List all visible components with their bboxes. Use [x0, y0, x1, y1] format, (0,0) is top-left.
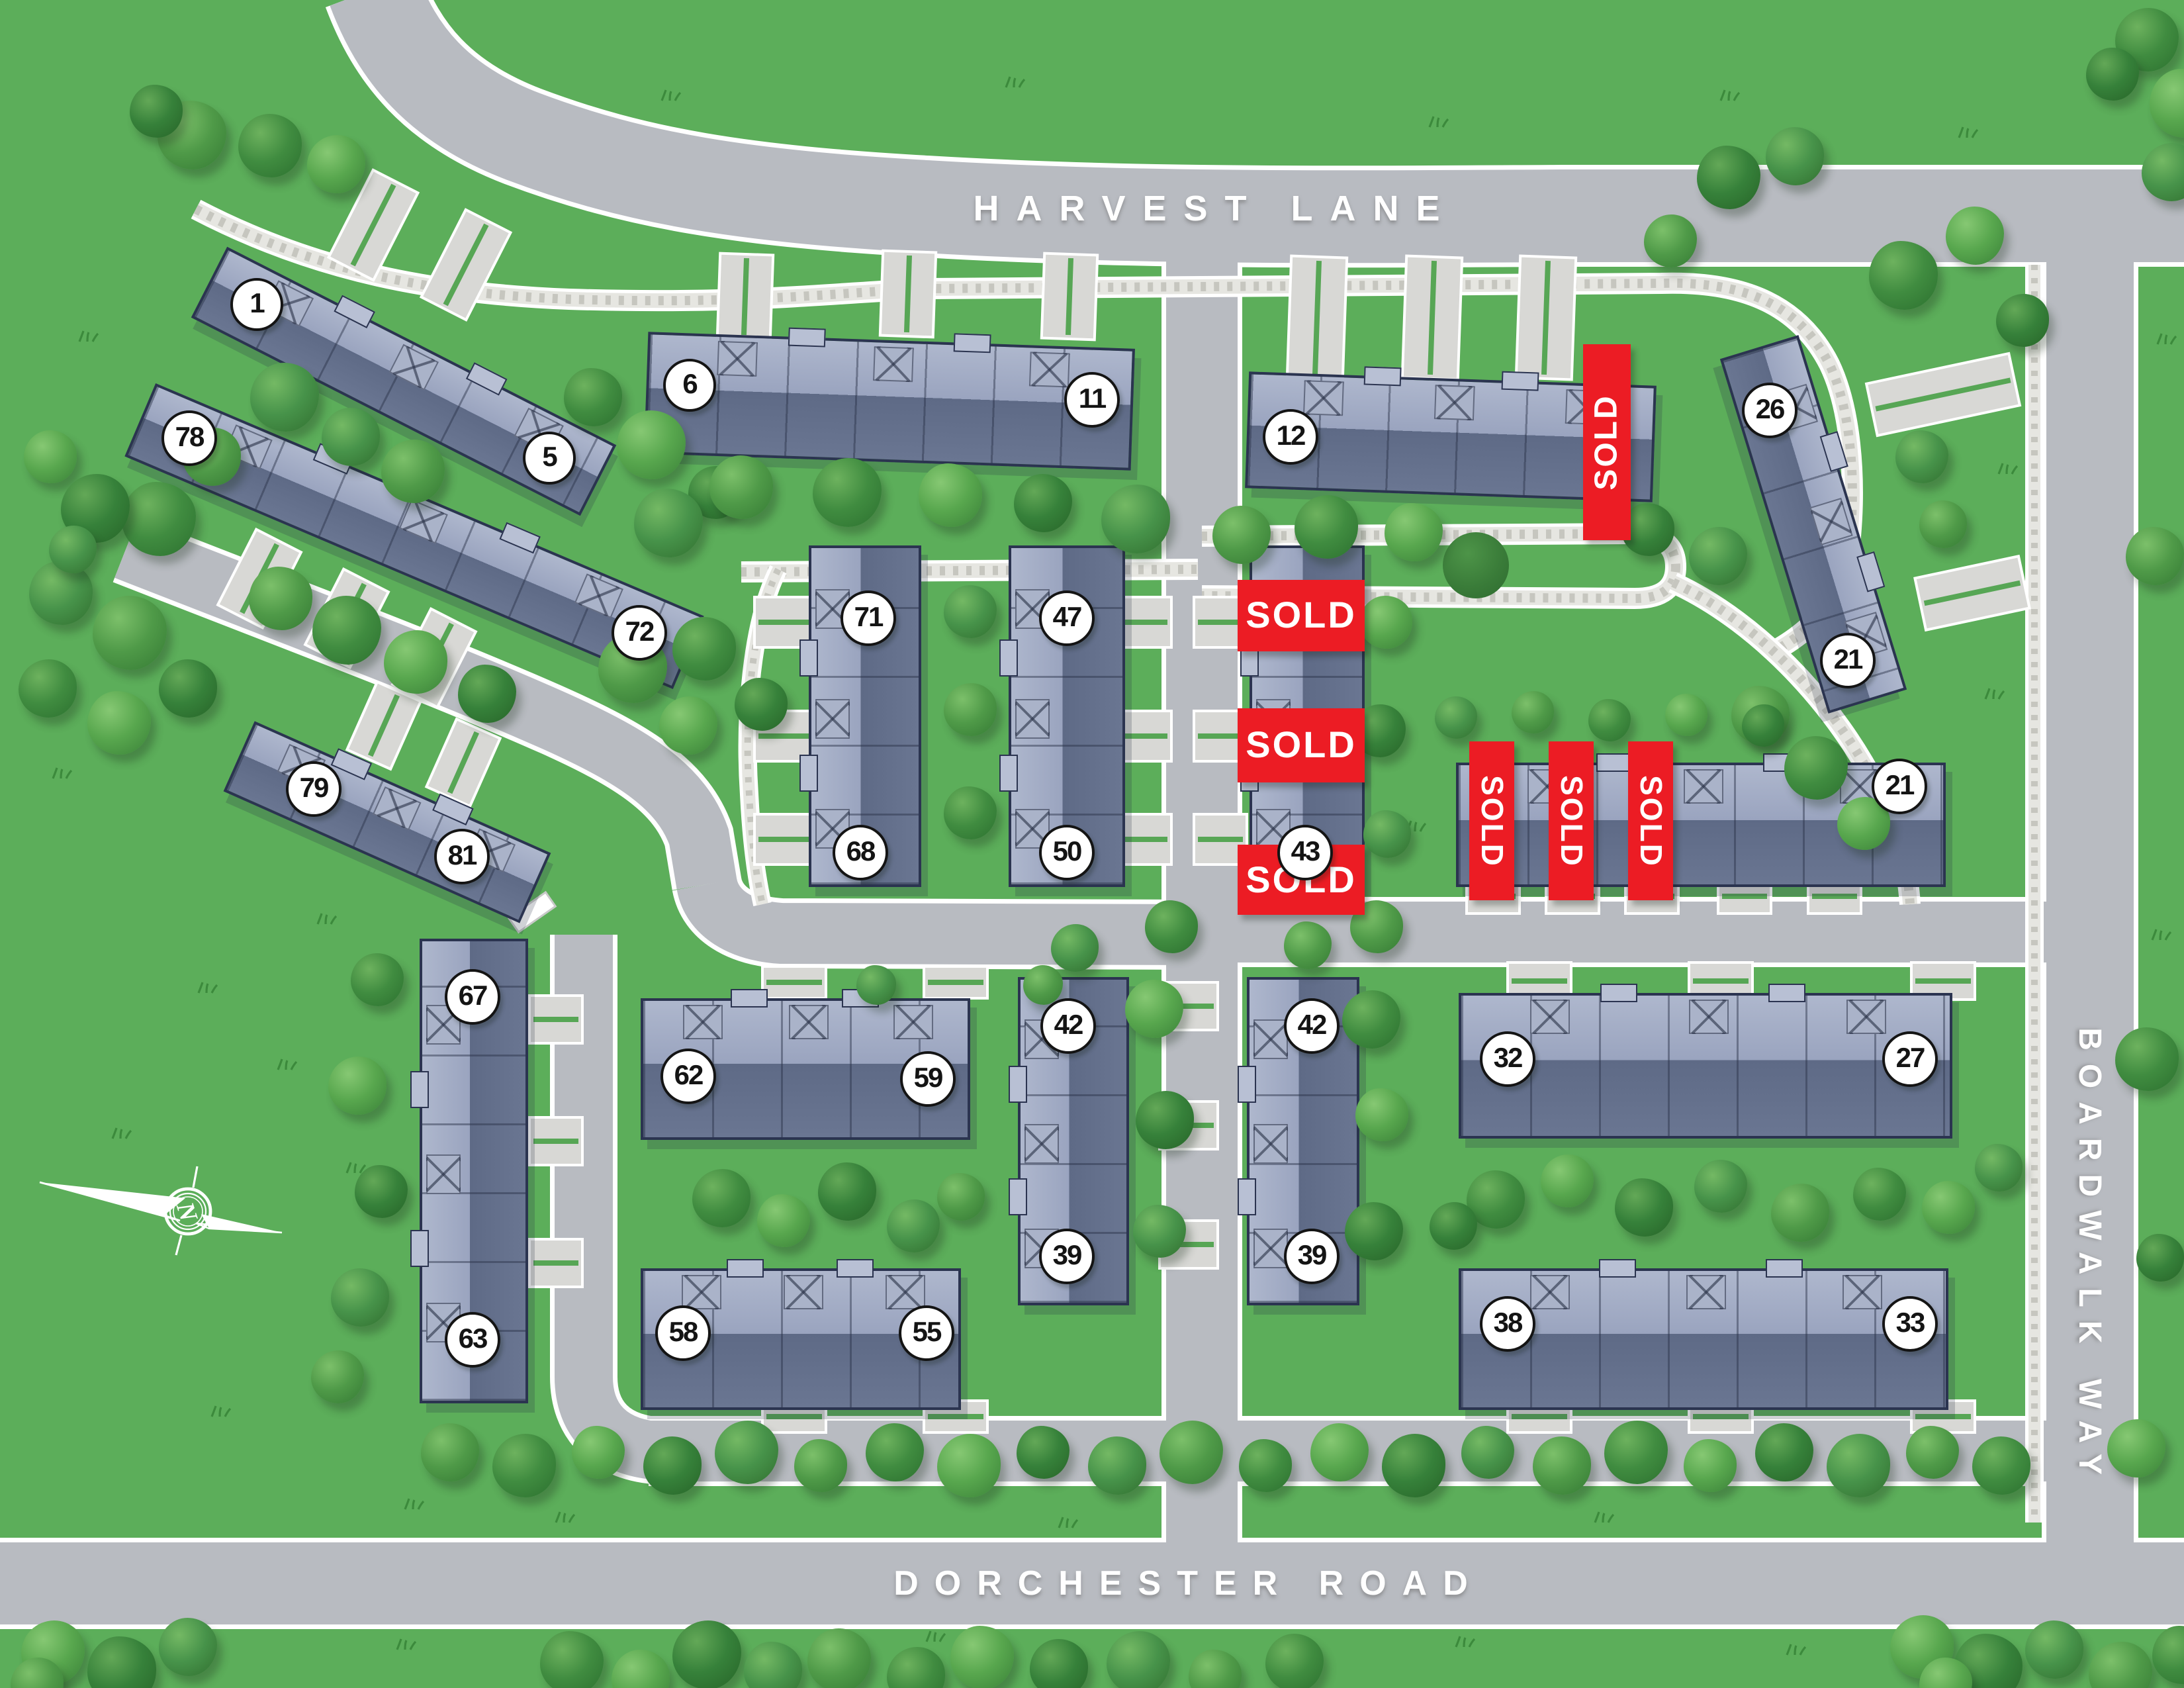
porch-bump: [1766, 1259, 1803, 1278]
site-plan-map: N HARVEST LANEDORCHESTER ROADBOARDWALK W…: [0, 0, 2184, 1688]
lot-badge-43[interactable]: 43: [1277, 825, 1333, 880]
tree-icon: [672, 1620, 741, 1688]
roof-trellis-panel: [1024, 1124, 1059, 1164]
lot-badge-21-upper[interactable]: 21: [1820, 633, 1876, 688]
tree-icon: [384, 630, 447, 694]
tree-icon: [944, 786, 997, 839]
grass-tuft-icon: [405, 1499, 424, 1509]
porch-bump: [1502, 371, 1539, 391]
tree-icon: [1665, 694, 1707, 736]
roof-trellis-panel: [1015, 699, 1050, 739]
tree-icon: [1755, 1423, 1813, 1481]
grass-tuft-icon: [662, 90, 680, 101]
tree-icon: [1136, 1091, 1194, 1149]
roof-trellis-panel: [1846, 1000, 1886, 1034]
tree-icon: [1014, 474, 1072, 532]
tree-icon: [312, 596, 381, 665]
tree-icon: [709, 455, 773, 519]
tree-icon: [1742, 704, 1784, 747]
tree-icon: [1604, 1421, 1668, 1484]
tree-icon: [2025, 1620, 2083, 1679]
porch-bump: [1768, 984, 1805, 1002]
tree-icon: [2136, 1234, 2184, 1282]
tree-icon: [1697, 146, 1760, 209]
roof-trellis-panel: [873, 346, 914, 382]
tree-icon: [807, 1628, 871, 1688]
sold-building-21-a[interactable]: SOLD: [1469, 741, 1514, 900]
lot-badge-6[interactable]: 6: [663, 359, 716, 412]
tree-icon: [1107, 1631, 1170, 1688]
tree-icon: [887, 1199, 940, 1252]
porch-bump: [999, 755, 1018, 792]
roof-trellis-panel: [1530, 1000, 1570, 1034]
lot-badge-62[interactable]: 62: [660, 1049, 716, 1104]
tree-icon: [322, 408, 380, 466]
roof-trellis-panel: [1684, 769, 1723, 804]
tree-icon: [458, 665, 516, 723]
building-38-33[interactable]: [1459, 1268, 1948, 1410]
tree-icon: [2126, 527, 2184, 585]
tree-icon: [328, 1056, 387, 1115]
tree-icon: [1869, 241, 1938, 310]
tree-icon: [944, 585, 997, 638]
tree-icon: [1771, 1184, 1829, 1242]
tree-icon: [1996, 294, 2049, 347]
porch-bump: [799, 639, 818, 676]
tree-icon: [311, 1350, 364, 1403]
tree-icon: [2107, 1419, 2165, 1477]
tree-icon: [1133, 1205, 1186, 1258]
grass-tuft-icon: [79, 331, 98, 342]
tree-icon: [937, 1434, 1001, 1497]
lot-badge-71[interactable]: 71: [841, 590, 896, 646]
tree-icon: [1975, 1144, 2023, 1192]
parking-pad: [1042, 254, 1097, 340]
tree-icon: [1922, 1181, 1975, 1234]
tree-icon: [1512, 691, 1554, 733]
tree-icon: [1342, 990, 1400, 1049]
tree-icon: [1541, 1154, 1594, 1207]
tree-icon: [856, 965, 896, 1005]
tree-icon: [1382, 1434, 1445, 1497]
harvest-lane-road: [373, 0, 2184, 216]
tree-icon: [421, 1423, 479, 1481]
roof-trellis-panel: [1304, 380, 1345, 416]
tree-icon: [2115, 1027, 2179, 1091]
grass-tuft-icon: [1059, 1517, 1077, 1528]
tree-icon: [919, 463, 982, 527]
tree-icon: [1461, 1426, 1514, 1479]
tree-icon: [735, 678, 788, 731]
tree-icon: [238, 114, 302, 177]
lot-badge-78[interactable]: 78: [161, 410, 217, 466]
parking-pad: [426, 719, 500, 806]
tree-icon: [1355, 1088, 1408, 1141]
porch-bump: [1600, 1259, 1637, 1278]
sold-label: SOLD: [1588, 394, 1625, 490]
parking-pad: [1402, 256, 1462, 380]
tree-icon: [1295, 495, 1358, 559]
lot-badge-79[interactable]: 79: [286, 761, 341, 817]
tree-icon: [1430, 1202, 1477, 1250]
lot-badge-68[interactable]: 68: [833, 825, 888, 880]
grass-tuft-icon: [1430, 117, 1448, 127]
sold-building-21-b[interactable]: SOLD: [1549, 741, 1594, 900]
tree-icon: [1363, 810, 1411, 858]
lot-badge-67[interactable]: 67: [445, 969, 500, 1025]
lot-badge-27[interactable]: 27: [1882, 1031, 1938, 1087]
tree-icon: [1088, 1436, 1146, 1495]
tree-icon: [1101, 485, 1170, 553]
grass-tuft-icon: [1999, 463, 2017, 474]
parking-pad: [529, 1239, 582, 1287]
tree-icon: [757, 1194, 810, 1247]
sold-label: SOLD: [1553, 774, 1589, 867]
street-label-harvest-lane: HARVEST LANE: [973, 189, 1457, 230]
lot-badge-59[interactable]: 59: [900, 1051, 956, 1107]
tree-icon: [1827, 1434, 1890, 1497]
porch-bump: [1601, 984, 1638, 1002]
tree-icon: [1784, 736, 1848, 800]
grass-tuft-icon: [318, 914, 336, 924]
lot-badge-21-lower[interactable]: 21: [1872, 759, 1927, 814]
parking-pad: [1915, 556, 2029, 630]
tree-icon: [634, 489, 703, 557]
tree-icon: [1345, 1202, 1403, 1260]
tree-icon: [1946, 207, 2004, 265]
tree-icon: [1919, 500, 1967, 548]
lot-badge-42-west[interactable]: 42: [1040, 998, 1096, 1054]
tree-icon: [331, 1268, 389, 1327]
porch-bump: [1009, 1178, 1027, 1215]
tree-icon: [1385, 503, 1443, 561]
street-label-dorchester-road: DORCHESTER ROAD: [893, 1563, 1484, 1604]
tree-icon: [1853, 1168, 1906, 1221]
grass-tuft-icon: [1959, 127, 1978, 138]
tree-icon: [950, 1626, 1014, 1688]
tree-icon: [564, 368, 622, 426]
tree-icon: [93, 596, 167, 670]
sold-label: SOLD: [1474, 774, 1510, 867]
grass-tuft-icon: [1456, 1636, 1475, 1647]
grass-tuft-icon: [212, 1406, 230, 1417]
tree-icon: [1284, 921, 1332, 969]
tree-icon: [813, 458, 882, 527]
tree-icon: [1766, 127, 1824, 185]
tree-icon: [540, 1631, 604, 1688]
parking-pad: [924, 966, 987, 998]
tree-icon: [307, 135, 365, 193]
lot-badge-50[interactable]: 50: [1039, 825, 1095, 880]
roof-trellis-panel: [784, 1275, 823, 1309]
roof-trellis-panel: [1688, 1000, 1728, 1034]
tree-icon: [643, 1436, 702, 1495]
porch-bump: [953, 333, 991, 353]
grass-tuft-icon: [556, 1512, 574, 1523]
roof-trellis-panel: [683, 1005, 723, 1039]
parking-pad: [880, 251, 936, 338]
roof-trellis-panel: [788, 1005, 828, 1039]
porch-bump: [727, 1259, 764, 1278]
porch-bump: [730, 989, 767, 1008]
lot-badge-5[interactable]: 5: [523, 432, 576, 485]
tree-icon: [617, 410, 686, 479]
grass-tuft-icon: [397, 1639, 416, 1650]
tree-icon: [355, 1165, 408, 1218]
porch-bump: [410, 1072, 429, 1109]
lot-badge-58[interactable]: 58: [655, 1305, 711, 1361]
sold-building-43-a[interactable]: SOLD: [1238, 580, 1365, 651]
tree-icon: [1588, 699, 1631, 741]
tree-icon: [1972, 1436, 2030, 1495]
parking-pad: [529, 996, 582, 1043]
tree-icon: [492, 1434, 556, 1497]
tree-icon: [937, 1173, 985, 1221]
tree-icon: [1239, 1439, 1292, 1492]
lot-badge-39-west[interactable]: 39: [1039, 1229, 1095, 1284]
roof-trellis-panel: [1843, 1275, 1883, 1309]
sold-label: SOLD: [1633, 774, 1668, 867]
tree-icon: [1145, 900, 1198, 953]
compass-icon: N: [40, 1166, 282, 1255]
roof-trellis-panel: [886, 1275, 926, 1309]
lot-badge-63[interactable]: 63: [445, 1312, 500, 1368]
lot-badge-39-east[interactable]: 39: [1284, 1229, 1340, 1284]
parking-pad: [1866, 353, 2020, 436]
roof-trellis-panel: [1253, 1019, 1288, 1058]
porch-bump: [799, 755, 818, 792]
porch-bump: [1238, 1066, 1256, 1103]
sold-label: SOLD: [1246, 594, 1357, 637]
tree-icon: [692, 1169, 751, 1227]
roof-trellis-panel: [717, 341, 758, 377]
porch-bump: [999, 639, 1018, 676]
porch-bump: [1238, 1178, 1256, 1215]
porch-bump: [836, 1259, 873, 1278]
porch-bump: [1363, 366, 1401, 386]
lot-badge-11[interactable]: 11: [1064, 372, 1120, 428]
tree-icon: [572, 1426, 625, 1479]
street-label-boardwalk-way: BOARDWALK WAY: [2070, 1027, 2107, 1488]
parking-pad: [717, 254, 773, 340]
tree-icon: [866, 1423, 924, 1481]
roof-trellis-panel: [815, 699, 850, 739]
lot-badge-26[interactable]: 26: [1742, 383, 1797, 438]
tree-icon: [1684, 1439, 1737, 1492]
tree-icon: [1615, 1178, 1673, 1237]
lot-badge-1[interactable]: 1: [230, 278, 283, 331]
tree-icon: [1125, 980, 1183, 1038]
porch-bump: [788, 328, 825, 348]
tree-icon: [1212, 506, 1271, 564]
lot-badge-38[interactable]: 38: [1480, 1296, 1535, 1352]
grass-tuft-icon: [199, 982, 217, 993]
grass-tuft-icon: [1985, 688, 2004, 699]
tree-icon: [1895, 430, 1948, 483]
grass-tuft-icon: [1721, 90, 1739, 101]
tree-icon: [1160, 1421, 1223, 1484]
tree-icon: [818, 1162, 876, 1221]
grass-tuft-icon: [1006, 77, 1024, 87]
tree-icon: [159, 1618, 217, 1676]
tree-icon: [381, 440, 445, 503]
tree-icon: [715, 1421, 778, 1484]
tree-icon: [1533, 1436, 1591, 1495]
sold-label: SOLD: [1246, 724, 1357, 767]
lot-badge-47[interactable]: 47: [1039, 590, 1095, 646]
parking-pad: [1516, 256, 1576, 380]
parking-pad: [529, 1117, 582, 1165]
sold-building-43-b[interactable]: SOLD: [1238, 708, 1365, 782]
tree-icon: [250, 363, 319, 432]
tree-icon: [159, 659, 217, 718]
tree-icon: [1644, 214, 1697, 267]
tree-icon: [49, 526, 97, 573]
tree-icon: [944, 683, 997, 736]
roof-trellis-panel: [893, 1005, 933, 1039]
tree-icon: [1017, 1426, 1069, 1479]
tree-icon: [659, 696, 717, 755]
inner-road-west: [707, 884, 1202, 935]
tree-icon: [19, 659, 77, 718]
sold-building-12[interactable]: SOLD: [1583, 344, 1631, 540]
tree-icon: [1359, 596, 1412, 649]
tree-icon: [130, 85, 183, 138]
tree-icon: [672, 617, 736, 680]
lot-badge-72[interactable]: 72: [612, 605, 667, 661]
lot-badge-55[interactable]: 55: [899, 1305, 954, 1361]
grass-tuft-icon: [2152, 929, 2171, 940]
lot-badge-81[interactable]: 81: [434, 829, 490, 884]
tree-icon: [24, 430, 77, 483]
grass-tuft-icon: [1787, 1644, 1805, 1655]
grass-tuft-icon: [53, 768, 71, 778]
tree-icon: [1265, 1634, 1324, 1688]
tree-icon: [794, 1439, 847, 1492]
tree-icon: [1023, 965, 1063, 1005]
park-pond: [1443, 532, 1509, 598]
tree-icon: [2086, 48, 2139, 101]
lot-badge-33[interactable]: 33: [1882, 1296, 1938, 1352]
grass-tuft-icon: [927, 1631, 945, 1642]
porch-bump: [1009, 1066, 1027, 1103]
lot-badge-32[interactable]: 32: [1480, 1031, 1535, 1087]
tree-icon: [1051, 924, 1099, 972]
roof-trellis-panel: [1529, 1275, 1569, 1309]
lot-badge-12[interactable]: 12: [1263, 409, 1318, 465]
tree-icon: [249, 567, 312, 630]
roof-trellis-panel: [1028, 352, 1069, 387]
parking-pad: [762, 966, 826, 998]
tree-icon: [1694, 1160, 1747, 1213]
grass-tuft-icon: [113, 1128, 131, 1139]
roof-trellis-panel: [1253, 1124, 1288, 1164]
tree-icon: [1435, 696, 1477, 739]
roof-trellis-panel: [426, 1154, 461, 1194]
tree-icon: [1310, 1423, 1369, 1481]
tree-icon: [87, 691, 151, 755]
parking-pad: [1287, 256, 1347, 380]
sold-building-21-c[interactable]: SOLD: [1628, 741, 1673, 900]
roof-trellis-panel: [1434, 385, 1475, 420]
building-6-11[interactable]: [644, 332, 1135, 471]
parking-pad: [754, 814, 813, 865]
tree-icon: [351, 953, 404, 1006]
roof-trellis-panel: [1686, 1275, 1726, 1309]
lot-badge-42-east[interactable]: 42: [1284, 998, 1340, 1054]
roof-trellis-panel: [681, 1275, 721, 1309]
tree-icon: [1906, 1426, 1959, 1479]
tree-icon: [1689, 527, 1747, 585]
porch-bump: [410, 1229, 429, 1266]
roof-trellis-panel: [1253, 1229, 1288, 1269]
grass-tuft-icon: [278, 1059, 296, 1070]
tree-icon: [1030, 1639, 1088, 1688]
grass-tuft-icon: [1595, 1512, 1614, 1523]
grass-tuft-icon: [2158, 334, 2176, 344]
parking-pad: [347, 682, 420, 769]
tree-icon: [122, 482, 196, 556]
